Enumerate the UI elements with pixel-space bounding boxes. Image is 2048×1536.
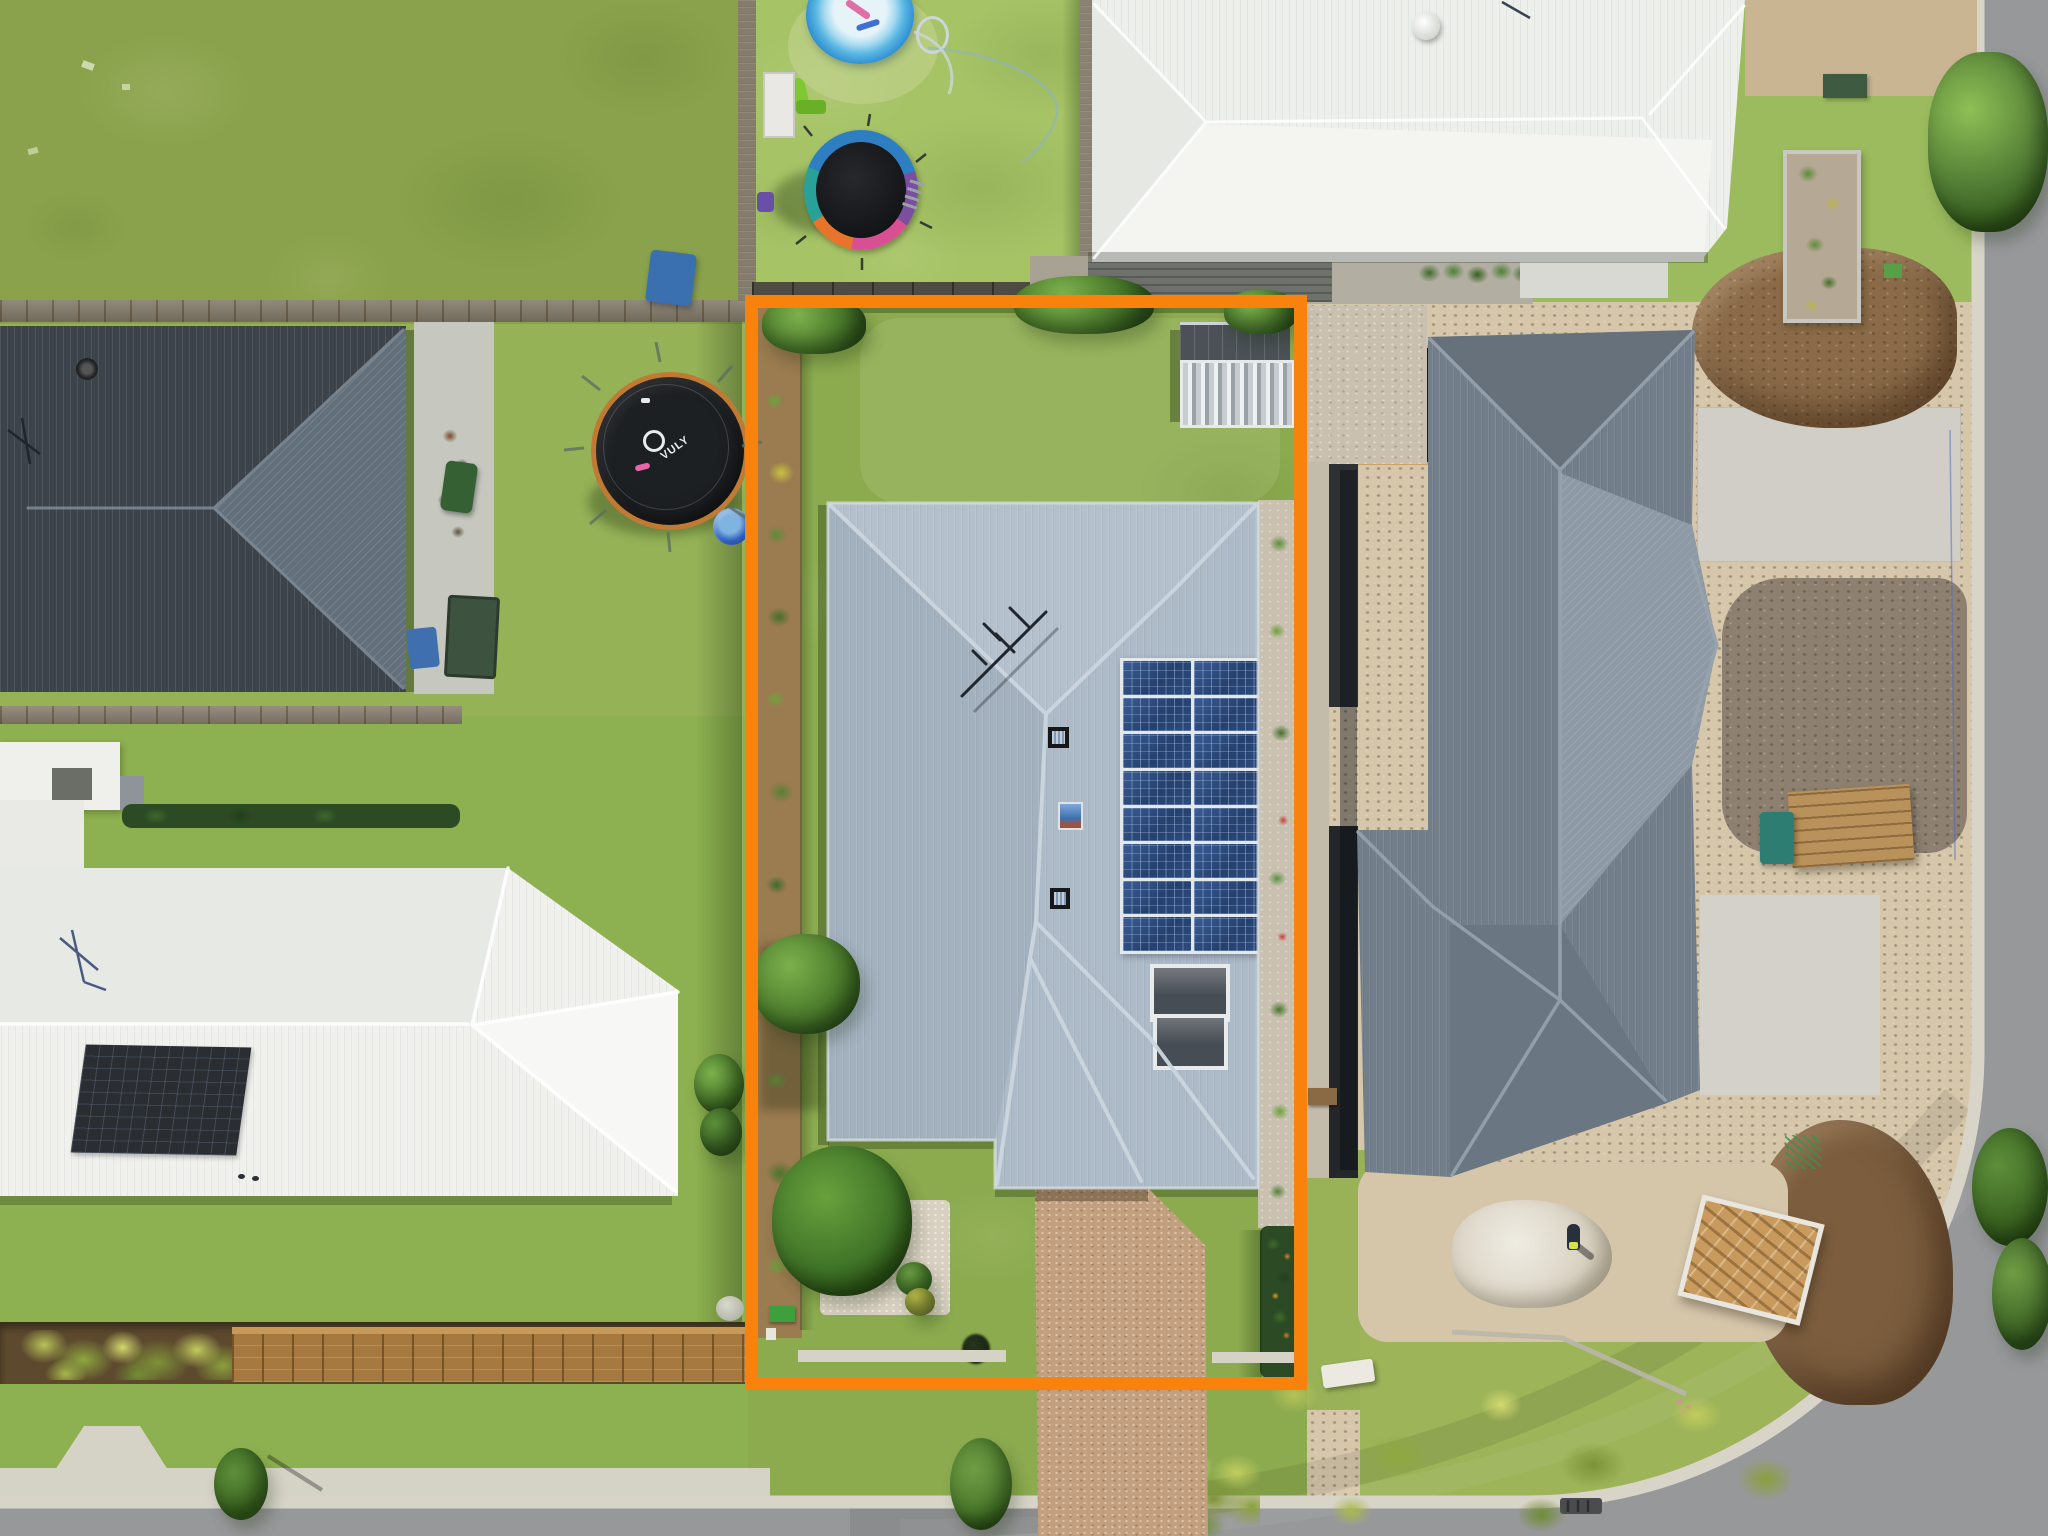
white-roof-ridges: [0, 868, 678, 1192]
branch-shadow: [268, 1456, 322, 1490]
garden-edge-line: [1452, 1332, 1686, 1394]
topleft-roof-ridges: [28, 330, 403, 688]
street-tree-left: [214, 1448, 268, 1520]
aerial-photo: VULY: [0, 0, 2048, 1536]
tree-topright-verge: [1928, 52, 2048, 232]
topright-roof-ridges: [1094, 4, 1744, 258]
tv-antenna-topleft: [8, 418, 40, 464]
tv-antenna-topright: [1502, 2, 1530, 18]
street-tree-verge: [950, 1438, 1012, 1530]
trampoline2-net-posts: [796, 114, 932, 270]
garden-hose: [928, 48, 1057, 162]
string-line: [1950, 430, 1955, 860]
pool-hose: [914, 32, 952, 94]
palm-bottom-right: [1972, 1128, 2048, 1246]
tv-antenna-white-house: [60, 930, 106, 990]
property-boundary-outline: [745, 295, 1307, 1390]
palm-bottom-right: [1992, 1238, 2048, 1350]
vuly-trampoline-legs: [564, 342, 762, 552]
right-roof-ridges: [1358, 332, 1717, 1175]
